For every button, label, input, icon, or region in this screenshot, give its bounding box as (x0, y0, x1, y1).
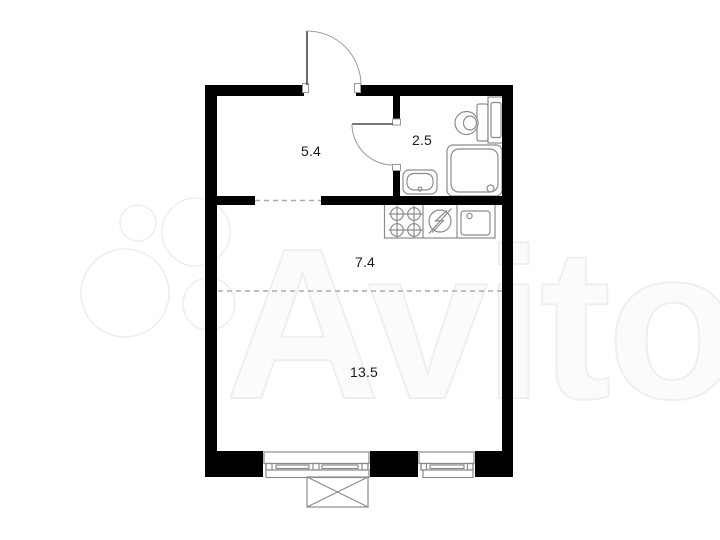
entrance-door (303, 31, 362, 93)
shower-tray-icon (447, 145, 502, 196)
living-area-label: 13.5 (350, 364, 378, 380)
kitchen-area-label: 7.4 (355, 254, 375, 270)
bathroom-door (352, 119, 401, 171)
floor-plan-image: Avito (0, 0, 720, 540)
kitchen-fixtures (385, 204, 496, 239)
window-large (264, 452, 369, 478)
toilet-icon (455, 104, 488, 141)
balcony-box-icon (307, 477, 368, 507)
window-small (419, 452, 474, 478)
washbasin-icon (403, 170, 437, 194)
storage-column-icon (488, 97, 503, 143)
watermark-brand-text: Avito (225, 203, 720, 444)
bathroom-area-label: 2.5 (412, 132, 432, 148)
hallway-area-label: 5.4 (301, 143, 321, 159)
